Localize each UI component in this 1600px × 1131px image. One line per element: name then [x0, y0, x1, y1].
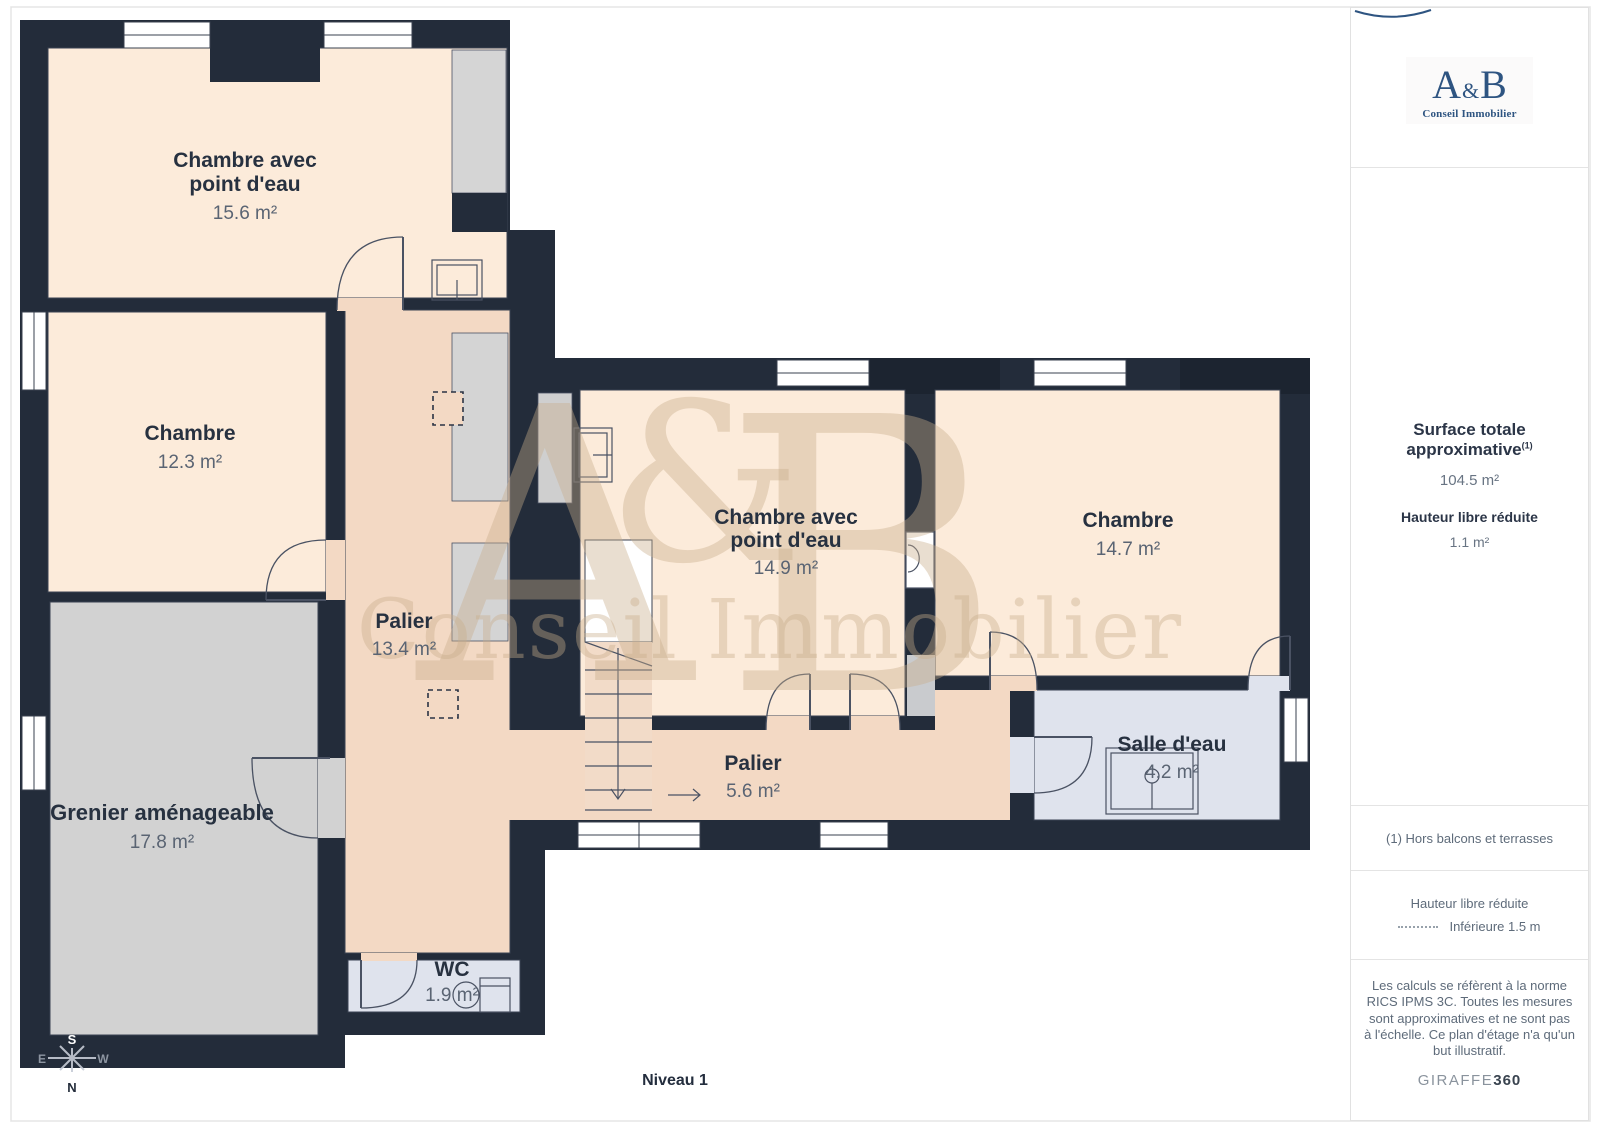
compass-south: S: [68, 1032, 77, 1047]
footnote-text: (1) Hors balcons et terrasses: [1386, 831, 1553, 846]
window: [820, 822, 888, 848]
dashed-line-icon: [1398, 926, 1438, 928]
room-area: 14.7 m²: [1096, 539, 1160, 560]
logo-letter-b: B: [1480, 62, 1507, 107]
agency-logo-subtitle: Conseil Immobilier: [1422, 108, 1516, 120]
giraffe360-brand: GIRAFFE360: [1364, 1072, 1575, 1089]
logo-letter-a: A: [1432, 62, 1461, 107]
room-area: 13.4 m²: [372, 639, 436, 660]
room-label: Chambre avec: [173, 149, 317, 172]
window: [22, 716, 46, 790]
window: [578, 822, 700, 848]
agency-logo: A&B Conseil Immobilier: [1351, 8, 1588, 168]
brand-name: GIRAFFE: [1418, 1072, 1494, 1089]
logo-swoosh: [1351, 8, 1435, 22]
watermark-subtitle: Conseil Immobilier: [357, 583, 1183, 678]
legend: Hauteur libre réduite Inférieure 1.5 m: [1351, 871, 1588, 960]
window: [1034, 360, 1126, 386]
room-label: WC: [435, 958, 470, 981]
room-label: point d'eau: [189, 173, 300, 196]
level-label: Niveau 1: [0, 1072, 1350, 1090]
floor-plan-page: A & B Conseil Immobilier Chambre avec po…: [0, 0, 1600, 1131]
window: [324, 22, 412, 48]
room-area: 15.6 m²: [213, 203, 277, 224]
room-label: Grenier aménageable: [50, 800, 274, 825]
brand-suffix: 360: [1493, 1072, 1521, 1089]
room-label: Palier: [724, 752, 781, 775]
reduced-height-title: Hauteur libre réduite: [1351, 509, 1588, 525]
room-label: Chambre: [144, 422, 235, 445]
legend-item-label: Inférieure 1.5 m: [1449, 919, 1540, 934]
compass-west: W: [97, 1052, 109, 1066]
room-area: 17.8 m²: [130, 832, 194, 853]
closet: [452, 50, 506, 193]
reduced-height-value: 1.1 m²: [1351, 534, 1588, 550]
room-label: Chambre avec: [714, 506, 858, 529]
compass-east: E: [38, 1052, 46, 1066]
room-label: Salle d'eau: [1118, 733, 1227, 756]
chimney: [210, 20, 320, 82]
room-area: 4.2 m²: [1145, 762, 1199, 783]
info-panel: A&B Conseil Immobilier Surface totale ap…: [1350, 7, 1589, 1121]
surface-total-label: Surface totale approximative: [1406, 420, 1525, 459]
room-label: point d'eau: [730, 529, 841, 552]
window: [22, 312, 46, 390]
room-area: 14.9 m²: [754, 558, 818, 579]
surface-total-value: 104.5 m²: [1351, 472, 1588, 489]
window: [1284, 698, 1308, 762]
legend-title: Hauteur libre réduite: [1411, 896, 1529, 911]
surface-total-title: Surface totale approximative(1): [1351, 420, 1588, 460]
footnote-marker: (1): [1522, 440, 1533, 450]
footnote: (1) Hors balcons et terrasses: [1351, 806, 1588, 871]
logo-ampersand: &: [1461, 78, 1480, 103]
surface-summary: Surface totale approximative(1) 104.5 m²…: [1351, 168, 1588, 806]
agency-logo-title: A&B: [1432, 65, 1507, 105]
disclaimer-section: Les calculs se réfèrent à la norme RICS …: [1351, 960, 1588, 1120]
room-label: Palier: [375, 610, 432, 633]
room-area: 5.6 m²: [726, 781, 780, 802]
room-label: Chambre: [1082, 509, 1173, 532]
disclaimer-text: Les calculs se réfèrent à la norme RICS …: [1364, 978, 1575, 1059]
window: [124, 22, 210, 48]
room-area: 12.3 m²: [158, 452, 222, 473]
room-area: 1.9 m²: [425, 985, 479, 1006]
